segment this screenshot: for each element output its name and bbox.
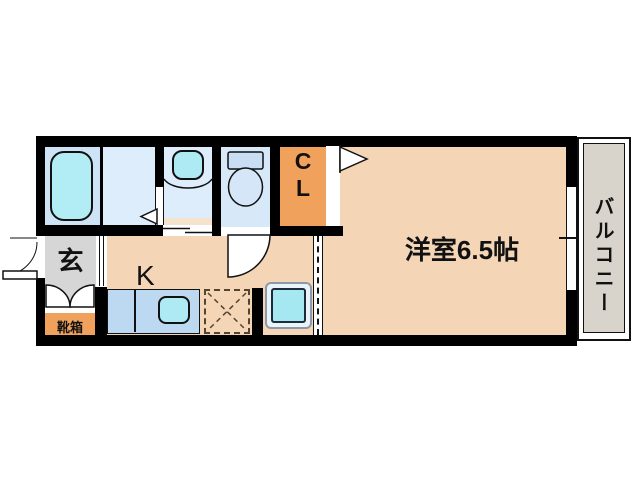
toilet-icon xyxy=(221,147,270,209)
genkan-label: 玄 xyxy=(45,241,96,278)
closet-door-flag-icon xyxy=(336,143,372,175)
sliding-door-icon xyxy=(163,225,212,236)
wall-toilet-closet xyxy=(270,147,280,236)
wall-fridge-stub xyxy=(252,288,263,335)
window-tick xyxy=(559,237,577,239)
step-line xyxy=(99,236,100,286)
washing-machine-icon xyxy=(265,282,312,329)
wall-right-lower xyxy=(566,290,577,346)
entrance-door-icon xyxy=(0,234,42,286)
divider-dashed-line xyxy=(317,236,319,335)
kitchen-counter xyxy=(107,289,200,334)
closet-label-l: L xyxy=(296,175,310,201)
counter-divider xyxy=(134,290,136,332)
wall-genkan-stub xyxy=(95,287,107,335)
wall-bath-divider xyxy=(100,147,103,225)
shoe-box-label: 靴箱 xyxy=(45,317,95,336)
bathtub-icon xyxy=(50,151,93,221)
vanity-floor-strip xyxy=(164,218,212,225)
genkan-step-lines xyxy=(96,236,107,286)
double-door-icon xyxy=(45,284,95,308)
closet-label-c: C xyxy=(295,148,312,174)
balcony-label: バルコニー xyxy=(589,172,617,340)
toilet-door-swing-icon xyxy=(222,231,274,283)
door-swing-triangle-icon xyxy=(139,207,159,227)
kitchen-label: K xyxy=(136,260,155,292)
main-room-floor-ext xyxy=(323,236,340,335)
kitchen-sink-icon xyxy=(158,296,190,324)
wall-washroom-vanity xyxy=(155,147,164,187)
wall-bottom xyxy=(36,335,577,346)
wall-left-upper xyxy=(36,136,45,236)
window-icon xyxy=(566,187,577,290)
wall-top xyxy=(36,136,577,147)
wall-vanity-toilet xyxy=(212,147,221,236)
washbasin-icon xyxy=(164,147,212,195)
wall-closet-bottom xyxy=(270,226,343,236)
room-divider-partition xyxy=(313,236,323,335)
wall-left-lower xyxy=(36,278,45,346)
washing-machine-tub xyxy=(271,288,306,323)
step-line xyxy=(103,236,104,286)
closet-label: C L xyxy=(280,148,326,202)
floorplan-canvas: 洋室6.5帖 バルコニー 玄 K C L 靴箱 xyxy=(0,0,640,480)
wall-right-upper xyxy=(566,136,577,187)
main-room-label: 洋室6.5帖 xyxy=(377,230,547,267)
refrigerator-space-icon xyxy=(204,289,250,334)
